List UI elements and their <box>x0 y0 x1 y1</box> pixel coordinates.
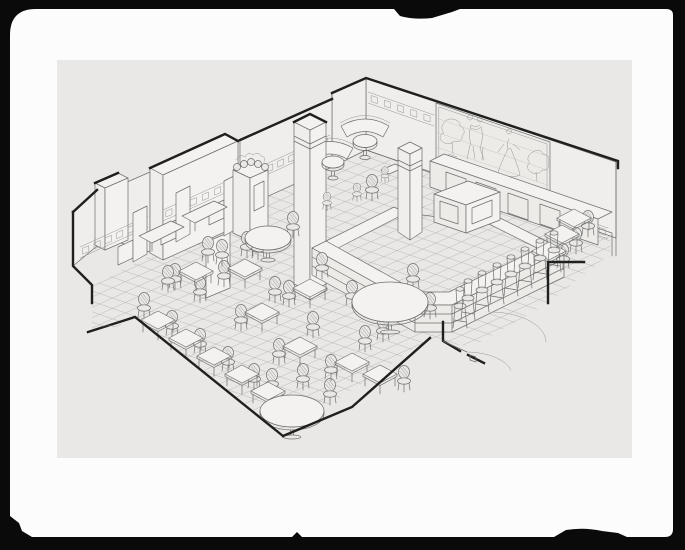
drawing-svg <box>0 0 685 550</box>
counter-pylon <box>398 142 422 240</box>
photograph-of-architectural-drawing <box>0 0 685 550</box>
